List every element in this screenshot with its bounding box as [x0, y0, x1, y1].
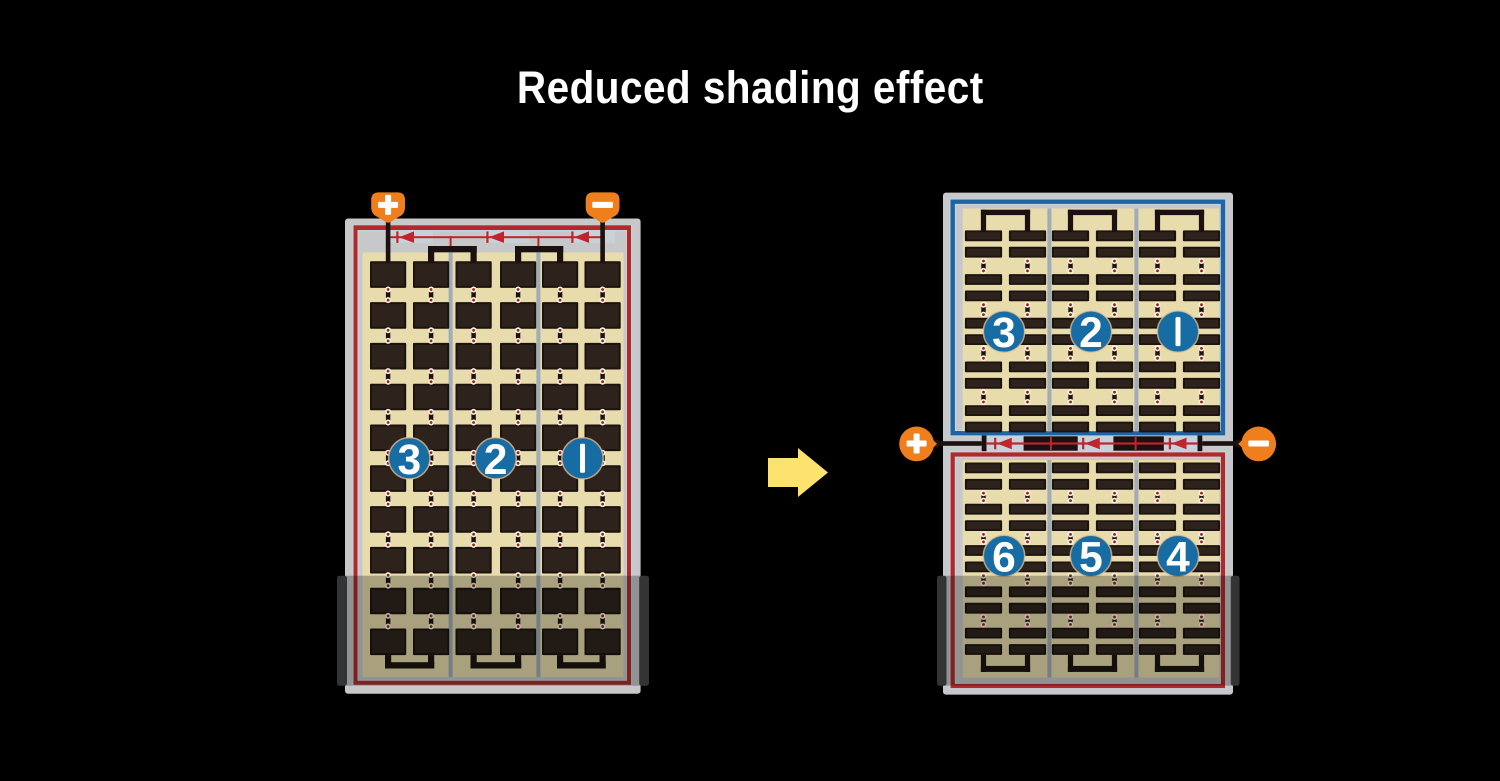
svg-text:3: 3 [397, 437, 421, 484]
svg-text:6: 6 [992, 535, 1016, 582]
svg-text:3: 3 [992, 310, 1016, 357]
svg-text:5: 5 [1079, 535, 1103, 582]
svg-text:2: 2 [1079, 310, 1103, 357]
svg-text:2: 2 [484, 437, 508, 484]
svg-text:4: 4 [1166, 535, 1190, 582]
